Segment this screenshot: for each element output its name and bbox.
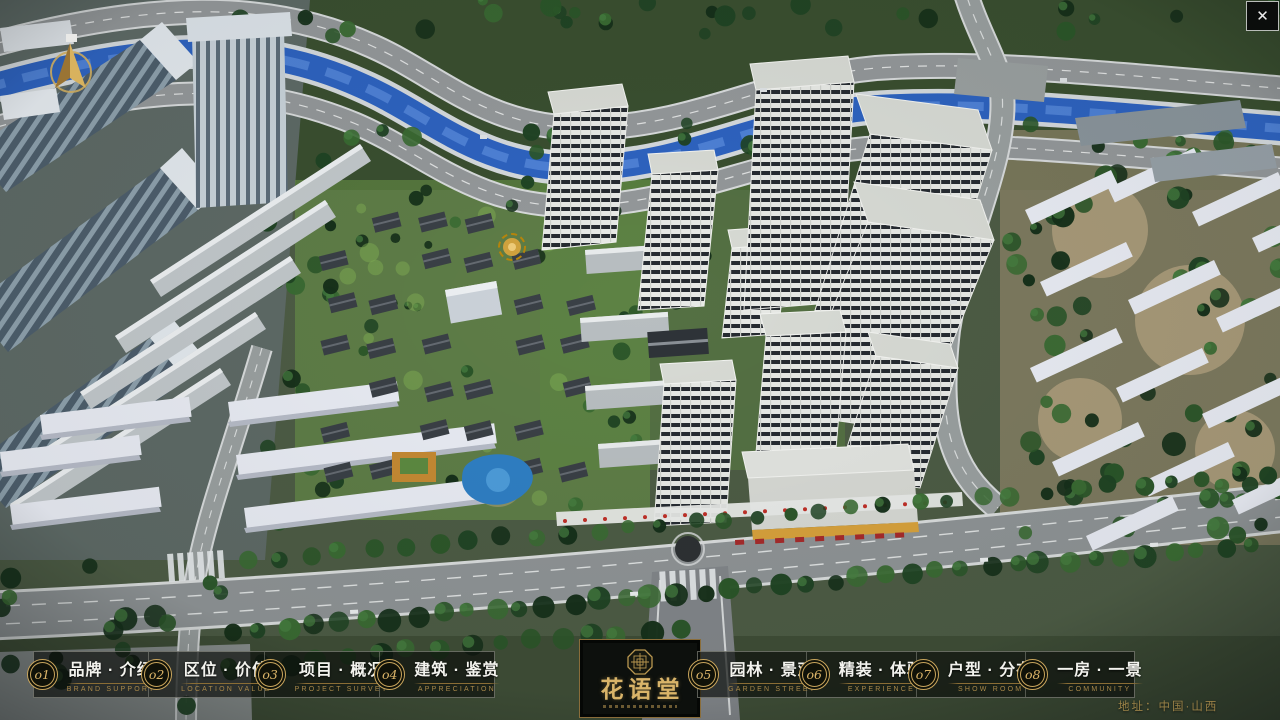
close-button[interactable]: ✕ — [1246, 1, 1279, 31]
number-badge-icon: o2 — [141, 659, 172, 690]
nav-group-left: o1 品牌 · 介绍BRAND SUPPORT o2 区位 · 价值LOCATI… — [33, 651, 495, 698]
nav-item-location-value[interactable]: o2 区位 · 价值LOCATION VALUE — [149, 652, 264, 697]
nav-label-en: GARDEN STREET — [728, 686, 816, 693]
nav-label-en: EXPERIENCE — [848, 686, 915, 693]
number-badge-icon: o3 — [255, 659, 286, 690]
project-address: 地址：中国·山西 — [1118, 698, 1268, 714]
nav-label-zh: 建筑 · 鉴赏 — [414, 656, 499, 680]
logo-emblem-icon — [627, 649, 653, 675]
nav-label-en: SHOW ROOM — [958, 686, 1023, 693]
number-badge-icon: o1 — [27, 659, 58, 690]
number-badge-icon: o5 — [688, 659, 719, 690]
nav-label-zh: 一房 · 一景 — [1057, 656, 1142, 680]
masterplan-render[interactable] — [0, 0, 1280, 720]
project-logo[interactable]: 花语堂 — [579, 639, 701, 718]
nav-item-brand-intro[interactable]: o1 品牌 · 介绍BRAND SUPPORT — [34, 652, 149, 697]
nav-label-en: LOCATION VALUE — [181, 686, 271, 693]
nav-item-project-overview[interactable]: o3 项目 · 概况PROJECT SURVEY — [265, 652, 380, 697]
number-badge-icon: o7 — [908, 659, 939, 690]
presentation-stage: ✕ o1 品牌 · 介绍BRAND SUPPORT o2 区位 · 价值LOCA… — [0, 0, 1280, 720]
number-badge-icon: o4 — [374, 659, 405, 690]
number-badge-icon: o8 — [1017, 659, 1048, 690]
nav-item-room-view[interactable]: o8 一房 · 一景COMMUNITY — [1026, 652, 1134, 697]
logo-title: 花语堂 — [596, 678, 685, 701]
nav-label-zh: 项目 · 概况 — [299, 656, 384, 680]
render-layers — [0, 0, 1280, 720]
nav-item-landscape[interactable]: o5 园林 · 景观GARDEN STREET — [698, 652, 807, 697]
nav-item-architecture[interactable]: o4 建筑 · 鉴赏APPRECIATION — [380, 652, 494, 697]
nav-label-en: PROJECT SURVEY — [295, 686, 389, 693]
nav-label-en: BRAND SUPPORT — [67, 686, 156, 693]
nav-item-interior-experience[interactable]: o6 精装 · 体验EXPERIENCE — [807, 652, 916, 697]
logo-subtitle-line — [603, 705, 677, 708]
nav-label-en: COMMUNITY — [1068, 686, 1131, 693]
nav-label-en: APPRECIATION — [418, 686, 496, 693]
nav-item-floorplan-distribution[interactable]: o7 户型 · 分布SHOW ROOM — [917, 652, 1026, 697]
number-badge-icon: o6 — [799, 659, 830, 690]
nav-group-right: o5 园林 · 景观GARDEN STREET o6 精装 · 体验EXPERI… — [697, 651, 1135, 698]
